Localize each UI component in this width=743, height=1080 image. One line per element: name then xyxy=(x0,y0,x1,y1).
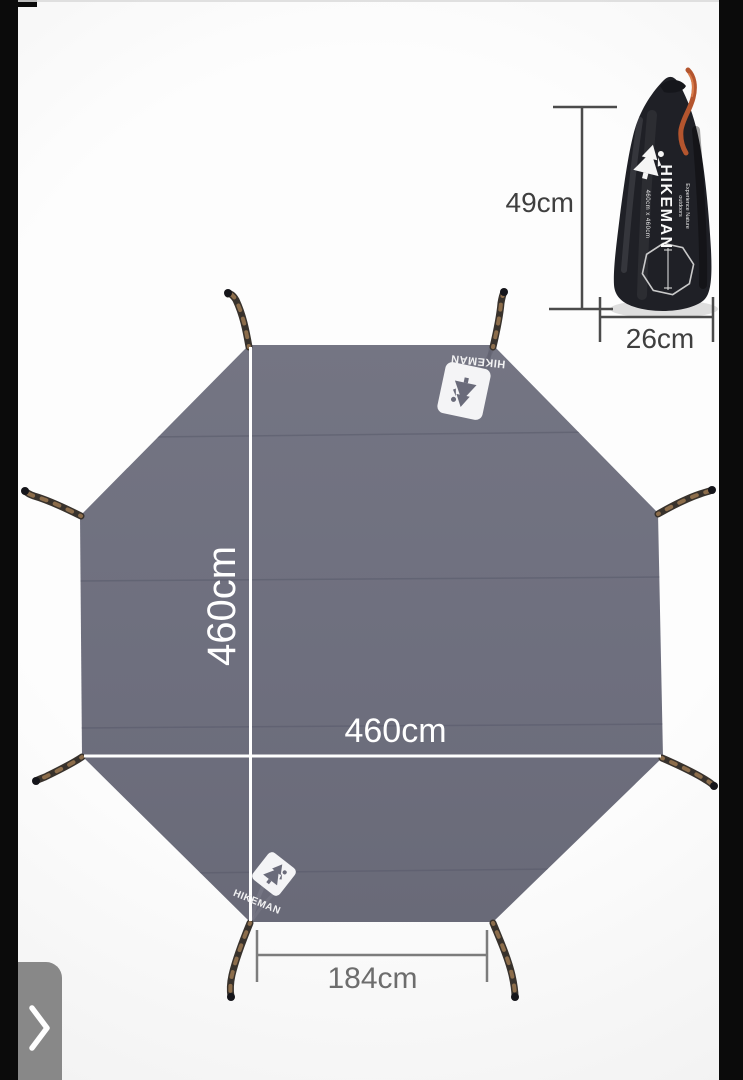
product-image-viewer: 49cm 26cm 460cm 460cm 184cm HIKEMAN HIKE… xyxy=(0,0,743,1080)
bag-size-label: 460cm x 460cm xyxy=(642,184,652,244)
bag-width-label: 26cm xyxy=(612,323,708,355)
top-hairline xyxy=(18,0,719,2)
bag-brand-label: HIKEMAN xyxy=(655,161,675,253)
right-letterbox-bar xyxy=(719,0,743,1080)
next-image-button[interactable] xyxy=(18,962,62,1080)
chevron-right-icon xyxy=(28,1003,52,1053)
bag-tagline-label: Experience Nature outdoors xyxy=(675,179,691,233)
bag-height-label: 49cm xyxy=(490,187,574,219)
left-letterbox-bar xyxy=(0,0,18,1080)
tarp-bottom-edge-dimension-label: 184cm xyxy=(300,962,445,996)
tarp-vertical-dimension-label: 460cm xyxy=(200,541,244,671)
product-diagram xyxy=(0,0,743,1080)
tarp-horizontal-dimension-label: 460cm xyxy=(323,712,468,751)
